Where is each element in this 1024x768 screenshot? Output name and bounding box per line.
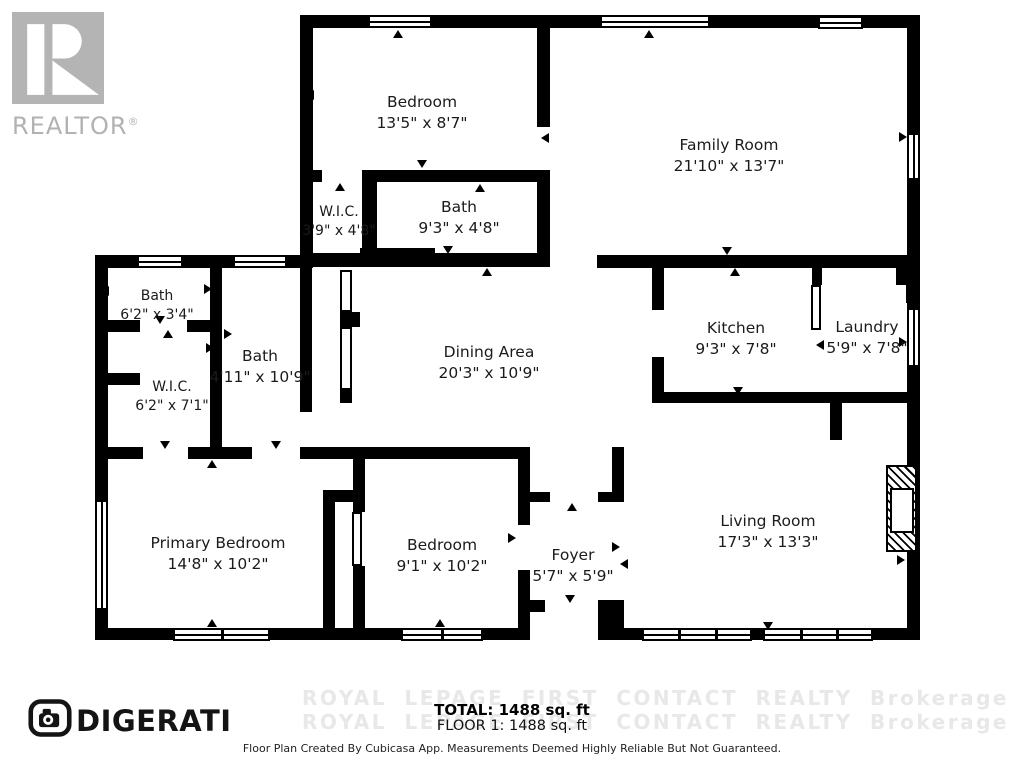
window xyxy=(818,16,863,29)
room-label-bedroom-1: Bedroom13'5" x 8'7" xyxy=(376,92,467,134)
realtor-logo-text: REALTOR® xyxy=(12,112,140,140)
digerati-logo-text: DIGERATI xyxy=(76,704,232,738)
fireplace xyxy=(886,465,917,552)
realtor-r-icon xyxy=(12,12,104,104)
wall-segment xyxy=(873,628,920,640)
door-marker xyxy=(763,622,773,630)
door-marker xyxy=(207,619,217,627)
floor-area-text: FLOOR 1: 1488 sq. ft xyxy=(437,718,587,734)
door-marker xyxy=(207,460,217,468)
room-label-foyer: Foyer5'7" x 5'9" xyxy=(532,545,613,587)
door-marker xyxy=(853,394,863,402)
disclaimer-text: Floor Plan Created By Cubicasa App. Meas… xyxy=(243,742,781,755)
room-label-living-room: Living Room17'3" x 13'3" xyxy=(718,511,819,553)
wall-segment xyxy=(108,447,143,459)
window xyxy=(642,628,752,641)
door-marker xyxy=(816,340,824,350)
wall-segment xyxy=(95,610,108,640)
wall-segment xyxy=(360,447,530,459)
digerati-camera-icon xyxy=(28,696,72,740)
window xyxy=(907,133,920,180)
wall-segment xyxy=(527,492,550,502)
wall-segment xyxy=(597,255,907,268)
window xyxy=(401,628,483,641)
wall-segment xyxy=(598,600,624,640)
door-marker xyxy=(204,284,212,294)
door-marker xyxy=(335,183,345,191)
wall-segment xyxy=(830,403,842,440)
wall-segment xyxy=(270,628,401,640)
door-marker xyxy=(897,555,905,565)
wall-segment xyxy=(300,170,322,182)
window xyxy=(137,255,183,268)
room-label-kitchen: Kitchen9'3" x 7'8" xyxy=(695,318,776,360)
door-marker xyxy=(730,268,740,276)
window xyxy=(95,500,108,610)
wall-segment xyxy=(518,600,545,612)
door-marker xyxy=(475,184,485,192)
door-marker xyxy=(271,441,281,449)
door-marker xyxy=(620,559,628,569)
room-label-bath-2: Bath6'2" x 3'4" xyxy=(120,287,193,325)
wall-segment xyxy=(300,447,360,459)
door-marker xyxy=(417,160,427,168)
wall-segment xyxy=(652,268,664,310)
room-label-laundry: Laundry5'9" x 7'8" xyxy=(826,317,907,359)
door-marker xyxy=(733,387,743,395)
room-label-dining-area: Dining Area20'3" x 10'9" xyxy=(439,342,540,384)
door-marker xyxy=(163,330,173,338)
wall-segment xyxy=(353,566,365,640)
door-marker xyxy=(899,132,907,142)
door-marker xyxy=(435,619,445,627)
window xyxy=(763,628,873,641)
wall-segment xyxy=(598,492,624,502)
door-marker xyxy=(541,133,549,143)
wall-segment xyxy=(353,447,365,512)
wall-segment xyxy=(537,15,550,127)
wall-segment xyxy=(652,392,920,403)
wall-segment xyxy=(362,170,550,182)
door-marker xyxy=(160,441,170,449)
wall-segment xyxy=(624,628,642,640)
digerati-logo: DIGERATI xyxy=(28,696,72,744)
window xyxy=(173,628,270,641)
door-marker xyxy=(443,246,453,254)
sliding-door xyxy=(340,270,352,312)
wall-segment xyxy=(812,268,822,285)
door-marker xyxy=(482,268,492,276)
realtor-logo: REALTOR® xyxy=(12,12,132,108)
room-label-bath-1: Bath9'3" x 4'8" xyxy=(418,197,499,239)
wall-segment xyxy=(340,312,360,327)
wall-segment xyxy=(906,283,920,303)
registered-mark: ® xyxy=(128,115,140,128)
sliding-door xyxy=(352,512,362,566)
wall-segment xyxy=(323,490,335,640)
brokerage-watermark: ROYAL LEPAGE FIRST CONTACT REALTY Broker… xyxy=(302,686,1009,710)
room-label-wic-1: W.I.C.3'9" x 4'8" xyxy=(302,203,375,241)
wall-segment xyxy=(340,390,352,403)
window xyxy=(907,308,920,367)
fireplace-firebox xyxy=(890,488,914,533)
door-marker xyxy=(306,90,314,100)
wall-segment xyxy=(752,628,763,640)
window xyxy=(368,15,432,28)
wall-segment xyxy=(188,447,252,459)
sliding-door xyxy=(340,327,352,390)
door-marker xyxy=(101,286,109,296)
sliding-door xyxy=(811,285,821,330)
wall-segment xyxy=(310,253,550,267)
window xyxy=(600,15,710,28)
room-label-family-room: Family Room21'10" x 13'7" xyxy=(674,135,785,177)
door-marker xyxy=(565,595,575,603)
door-marker xyxy=(99,345,107,355)
wall-segment xyxy=(300,253,312,412)
floor-plan-page: REALTOR® xyxy=(0,0,1024,768)
room-label-bedroom-2: Bedroom9'1" x 10'2" xyxy=(396,535,487,577)
door-marker xyxy=(722,247,732,255)
door-marker xyxy=(508,533,516,543)
room-label-wic-2: W.I.C.6'2" x 7'1" xyxy=(135,378,208,416)
window xyxy=(233,255,287,268)
door-marker xyxy=(224,329,232,339)
room-label-bath-3: Bath4'11" x 10'9" xyxy=(210,346,311,388)
brokerage-watermark: ROYAL LEPAGE FIRST CONTACT REALTY Broker… xyxy=(302,710,1009,734)
door-marker xyxy=(393,30,403,38)
door-marker xyxy=(567,503,577,511)
door-marker xyxy=(644,30,654,38)
room-label-primary-bedroom: Primary Bedroom14'8" x 10'2" xyxy=(151,533,286,575)
total-area-text: TOTAL: 1488 sq. ft xyxy=(434,701,590,719)
